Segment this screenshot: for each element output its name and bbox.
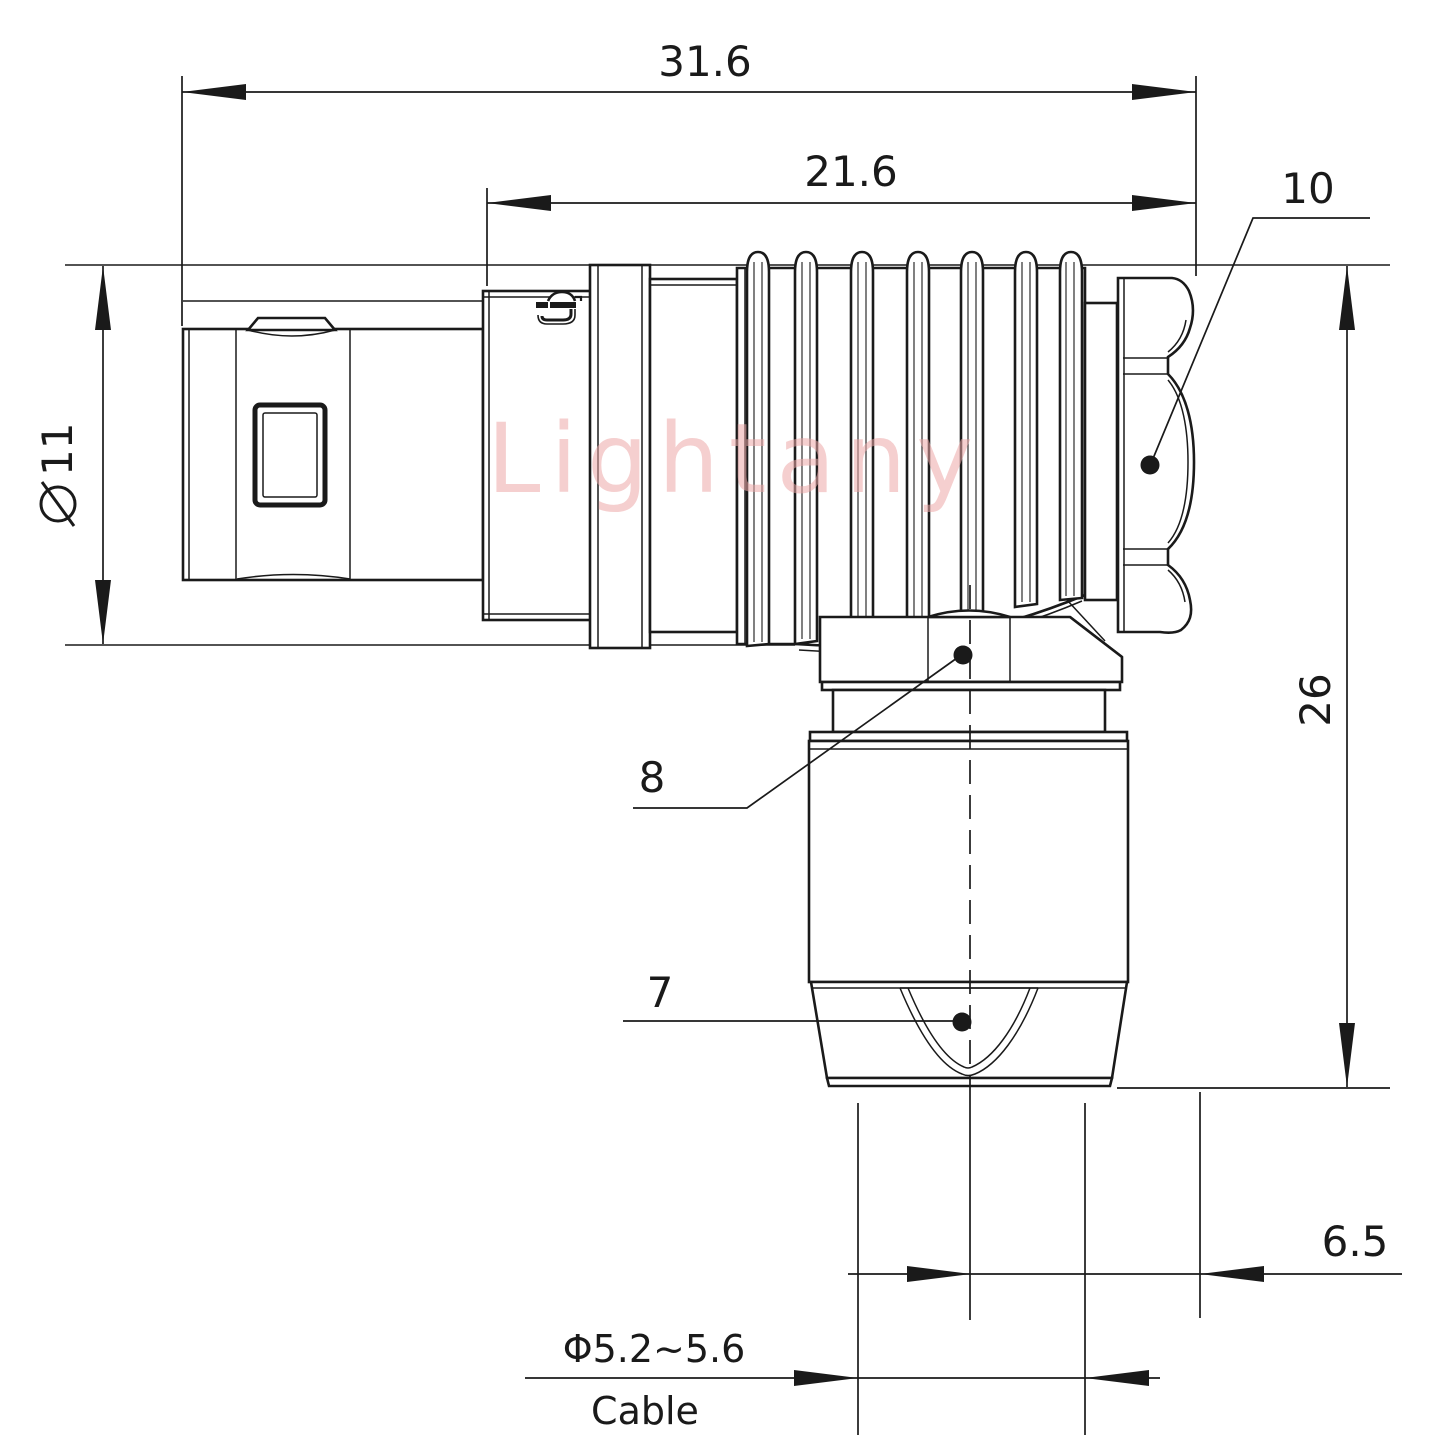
leader-8-dot — [954, 646, 973, 665]
watermark-text: Lightany — [487, 403, 983, 515]
arrow-up — [1339, 266, 1355, 330]
dim-axis-offset-value: 6.5 — [1322, 1217, 1389, 1266]
dim-cable-range-value: Φ5.2~5.6 — [563, 1327, 746, 1371]
leader-8-value: 8 — [639, 753, 666, 802]
arrow-right — [1132, 195, 1196, 211]
dim-axis-offset: 6.5 — [848, 1092, 1402, 1318]
arrow-right — [1085, 1370, 1149, 1386]
flange — [810, 732, 1127, 741]
arrow-left — [794, 1370, 858, 1386]
plug-outline — [183, 329, 483, 580]
skirt-outline — [811, 982, 1127, 1078]
arrow-right — [1132, 84, 1196, 100]
crown-nut — [1118, 278, 1194, 633]
arrow-left — [487, 195, 551, 211]
dim-cable-label: Cable — [591, 1389, 699, 1433]
plug-barrel — [183, 318, 483, 580]
dim-overall-length-value: 31.6 — [658, 37, 752, 86]
engineering-drawing-page: Lightany 31.6 21.6 10 — [0, 0, 1440, 1440]
plug-latch-bump — [248, 318, 335, 330]
rib-7 — [1060, 252, 1082, 600]
connector-technical-drawing: Lightany 31.6 21.6 10 — [0, 0, 1440, 1440]
lower-barrel — [809, 741, 1128, 982]
plug-window — [255, 405, 325, 505]
dim-shell-diameter: 11 — [33, 266, 111, 644]
dim-body-length-value: 21.6 — [804, 147, 898, 196]
arrow-left — [182, 84, 246, 100]
dim-overall-height-value: 26 — [1291, 673, 1340, 726]
leader-7-dot — [953, 1013, 972, 1032]
arrow-up — [95, 266, 111, 330]
dim-cable: Φ5.2~5.6 Cable — [525, 1103, 1160, 1435]
neck — [833, 690, 1105, 732]
barrel-outline — [809, 741, 1128, 982]
arrow-down — [1339, 1023, 1355, 1087]
leader-10-dot — [1141, 456, 1160, 475]
hex-outline — [820, 617, 1122, 682]
arrow-down — [95, 580, 111, 644]
step-ring — [1085, 303, 1117, 600]
leader-10-value: 10 — [1281, 164, 1334, 213]
arrow-left — [907, 1266, 971, 1282]
connector-body — [183, 252, 1194, 1086]
dim-shell-diameter-label: 11 — [33, 423, 82, 526]
annotations: 31.6 21.6 10 11 — [33, 37, 1402, 1435]
leader-7-value: 7 — [647, 968, 674, 1017]
rib-6 — [1015, 252, 1037, 607]
arrow-right — [1200, 1266, 1264, 1282]
strain-relief — [811, 982, 1127, 1086]
dim-shell-diameter-value: 11 — [33, 423, 82, 476]
diameter-symbol-icon — [41, 482, 75, 526]
